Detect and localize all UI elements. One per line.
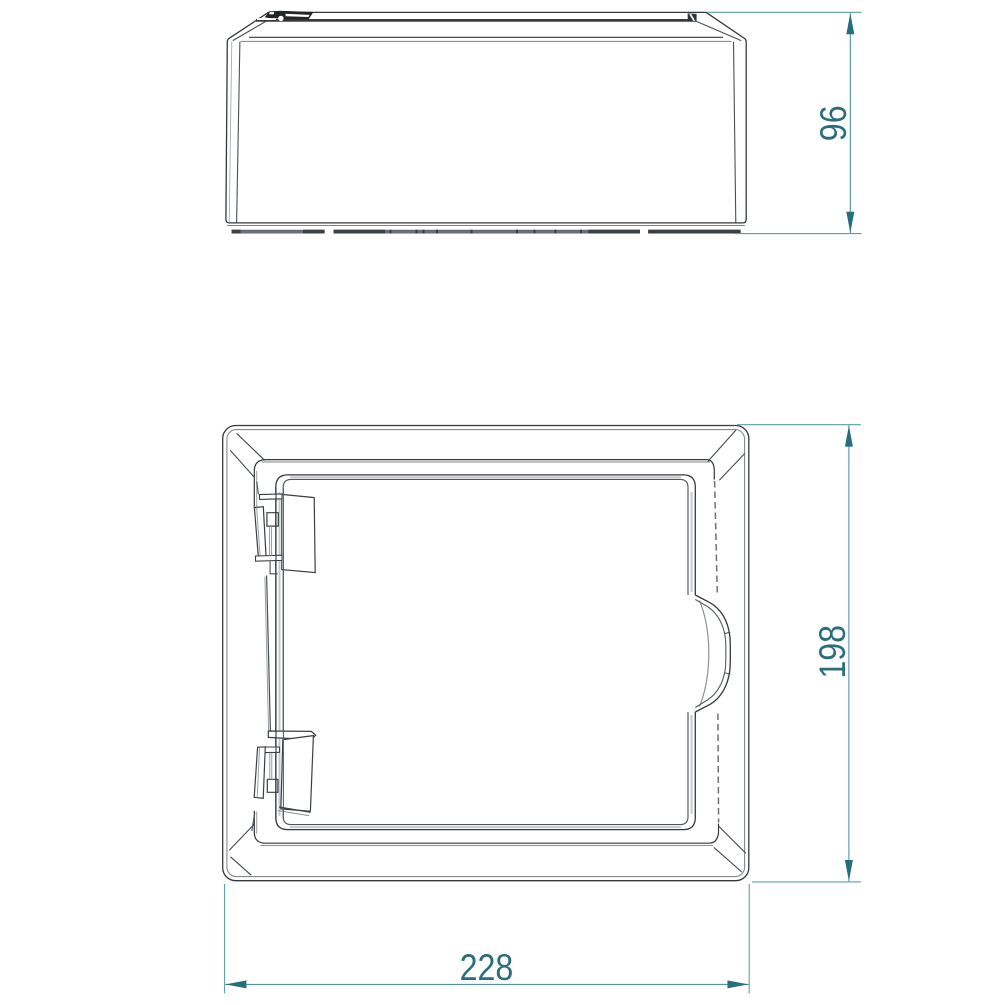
- svg-text:198: 198: [813, 625, 854, 679]
- svg-text:96: 96: [814, 105, 855, 141]
- svg-text:228: 228: [460, 948, 514, 989]
